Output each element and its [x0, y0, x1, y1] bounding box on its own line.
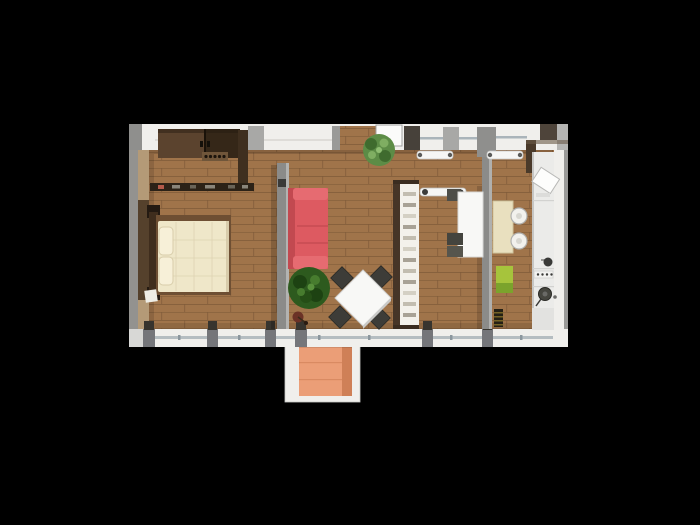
radiator	[417, 151, 453, 159]
entrance-jamb	[332, 126, 340, 150]
plant-foliage	[308, 284, 315, 291]
bottom-right-corner	[553, 329, 568, 347]
plant-foliage	[310, 275, 320, 285]
counter-item	[536, 193, 550, 197]
sofa-armrest	[293, 256, 328, 269]
bedside-object	[144, 289, 158, 303]
radiator-valve	[488, 153, 492, 157]
window-line-faint	[264, 139, 332, 141]
counter-lower	[532, 308, 554, 330]
wall-pillar	[129, 124, 142, 150]
window-glazing	[459, 137, 477, 140]
radiator-valve	[418, 153, 422, 157]
window-glazing	[420, 137, 443, 140]
stove-knob	[537, 273, 539, 275]
book	[403, 280, 416, 284]
pillar-cap	[208, 321, 217, 330]
pillar-cap	[423, 321, 432, 330]
entrance-hall	[363, 134, 395, 166]
plant-foliage	[293, 275, 307, 289]
window-tick	[238, 335, 241, 340]
nook-chair	[447, 246, 463, 257]
knob	[213, 155, 216, 158]
round-chair-seat	[516, 213, 522, 219]
bottom-left-corner	[129, 329, 143, 347]
wall-pillar-dark	[540, 124, 557, 140]
plant-foliage	[368, 151, 376, 159]
burner-center	[543, 292, 548, 297]
sideboard-item	[242, 185, 248, 189]
window-pillar	[295, 329, 307, 347]
wall-highlight	[489, 157, 492, 329]
counter-seam	[533, 286, 554, 287]
sideboard-item	[158, 185, 164, 189]
divider-base	[393, 325, 419, 329]
window-pillar	[265, 329, 276, 347]
knob	[222, 155, 225, 158]
interior-dark-wall-top	[526, 140, 568, 144]
wall-pillar-dark	[404, 126, 420, 150]
left-wall-outer	[129, 124, 138, 347]
book	[403, 269, 416, 273]
window-pillar	[143, 329, 155, 347]
bin-stripe	[494, 320, 503, 322]
window-tick	[318, 335, 321, 340]
stove-knob	[546, 273, 548, 275]
wardrobe-shadow	[158, 129, 240, 133]
book	[403, 192, 416, 196]
door-hinge-block	[278, 179, 286, 187]
wall-shadow	[271, 165, 277, 329]
sideboard-item	[205, 185, 215, 189]
screenshot-canvas	[0, 0, 700, 525]
counter-dot	[553, 295, 557, 299]
sink	[544, 258, 553, 267]
window-tick	[178, 335, 181, 340]
bin-stripe	[494, 316, 503, 318]
balcony-tile-line	[299, 379, 342, 380]
bin-stripe	[494, 324, 503, 326]
stove-knob	[541, 273, 543, 275]
book	[403, 313, 416, 317]
balcony-tile-line	[299, 362, 342, 363]
book	[403, 214, 416, 218]
stove-knob	[550, 273, 552, 275]
sofa-armrest	[293, 188, 328, 200]
radiator-valve	[422, 189, 428, 195]
plant-foliage	[297, 288, 305, 296]
window-glazing	[496, 136, 527, 139]
counter-seam	[533, 200, 554, 201]
wall-pillar	[443, 127, 459, 150]
divider-wall	[393, 184, 400, 329]
book	[403, 236, 416, 240]
lamp-base	[304, 321, 308, 325]
knob	[218, 155, 221, 158]
bin-stripe	[494, 312, 503, 314]
book	[403, 203, 416, 207]
plant-foliage	[380, 139, 389, 148]
right-wall-edge	[564, 124, 568, 347]
wardrobe-handle	[200, 141, 203, 147]
radiator-valve	[448, 153, 452, 157]
sideboard-item	[228, 185, 235, 189]
round-chair-seat	[516, 238, 522, 244]
closet-side-panel	[238, 130, 248, 188]
book	[403, 291, 416, 295]
plant-foliage	[365, 138, 377, 150]
balcony-floor-shade	[342, 345, 352, 396]
sideboard-item	[172, 185, 180, 189]
duvet-edge	[226, 221, 229, 292]
bed-pillow	[159, 227, 173, 255]
nook-chair	[447, 233, 463, 245]
counter-seam	[533, 268, 554, 269]
book	[403, 247, 416, 251]
green-stool-shade	[496, 283, 513, 293]
breakfast-table	[493, 201, 513, 253]
knob	[204, 155, 207, 158]
radiator-valve	[518, 153, 522, 157]
window-pillar	[482, 329, 493, 347]
corner-pillar	[557, 124, 568, 150]
window-pillar	[207, 329, 218, 347]
pillar-cap	[144, 321, 154, 330]
window-pillar	[422, 329, 433, 347]
book	[403, 225, 416, 229]
plant-foliage	[376, 147, 382, 153]
sideboard	[150, 183, 254, 191]
sideboard-item	[190, 185, 196, 189]
book	[403, 258, 416, 262]
book	[403, 302, 416, 306]
window-tick	[368, 335, 371, 340]
floor-plan-render	[0, 0, 700, 525]
window-tick	[520, 335, 523, 340]
wardrobe-left	[158, 129, 205, 158]
balcony	[285, 345, 360, 402]
window-tick	[450, 335, 453, 340]
radiator	[487, 151, 523, 159]
wall-pillar	[248, 126, 264, 150]
knob	[209, 155, 212, 158]
wardrobe-handle	[207, 141, 210, 147]
bed-pillow	[159, 257, 173, 285]
